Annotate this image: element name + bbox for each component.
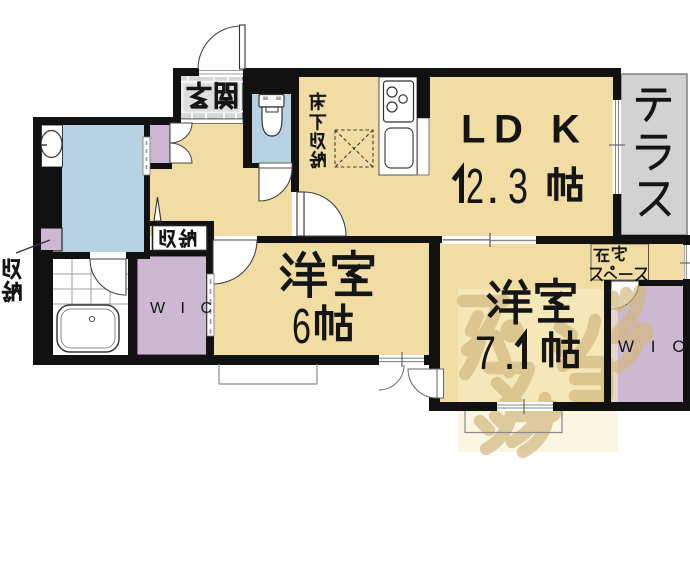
svg-text:L: L bbox=[461, 108, 485, 152]
svg-text:W I C: W I C bbox=[618, 337, 690, 356]
svg-text:3: 3 bbox=[508, 160, 528, 214]
svg-text:.: . bbox=[486, 160, 500, 214]
svg-text:7: 7 bbox=[475, 326, 496, 379]
svg-text:6: 6 bbox=[292, 300, 311, 354]
svg-text:2: 2 bbox=[466, 160, 484, 214]
svg-text:K: K bbox=[551, 108, 580, 152]
svg-text:D: D bbox=[494, 108, 523, 152]
svg-text:W I C: W I C bbox=[150, 300, 218, 317]
svg-text:.: . bbox=[503, 326, 516, 379]
